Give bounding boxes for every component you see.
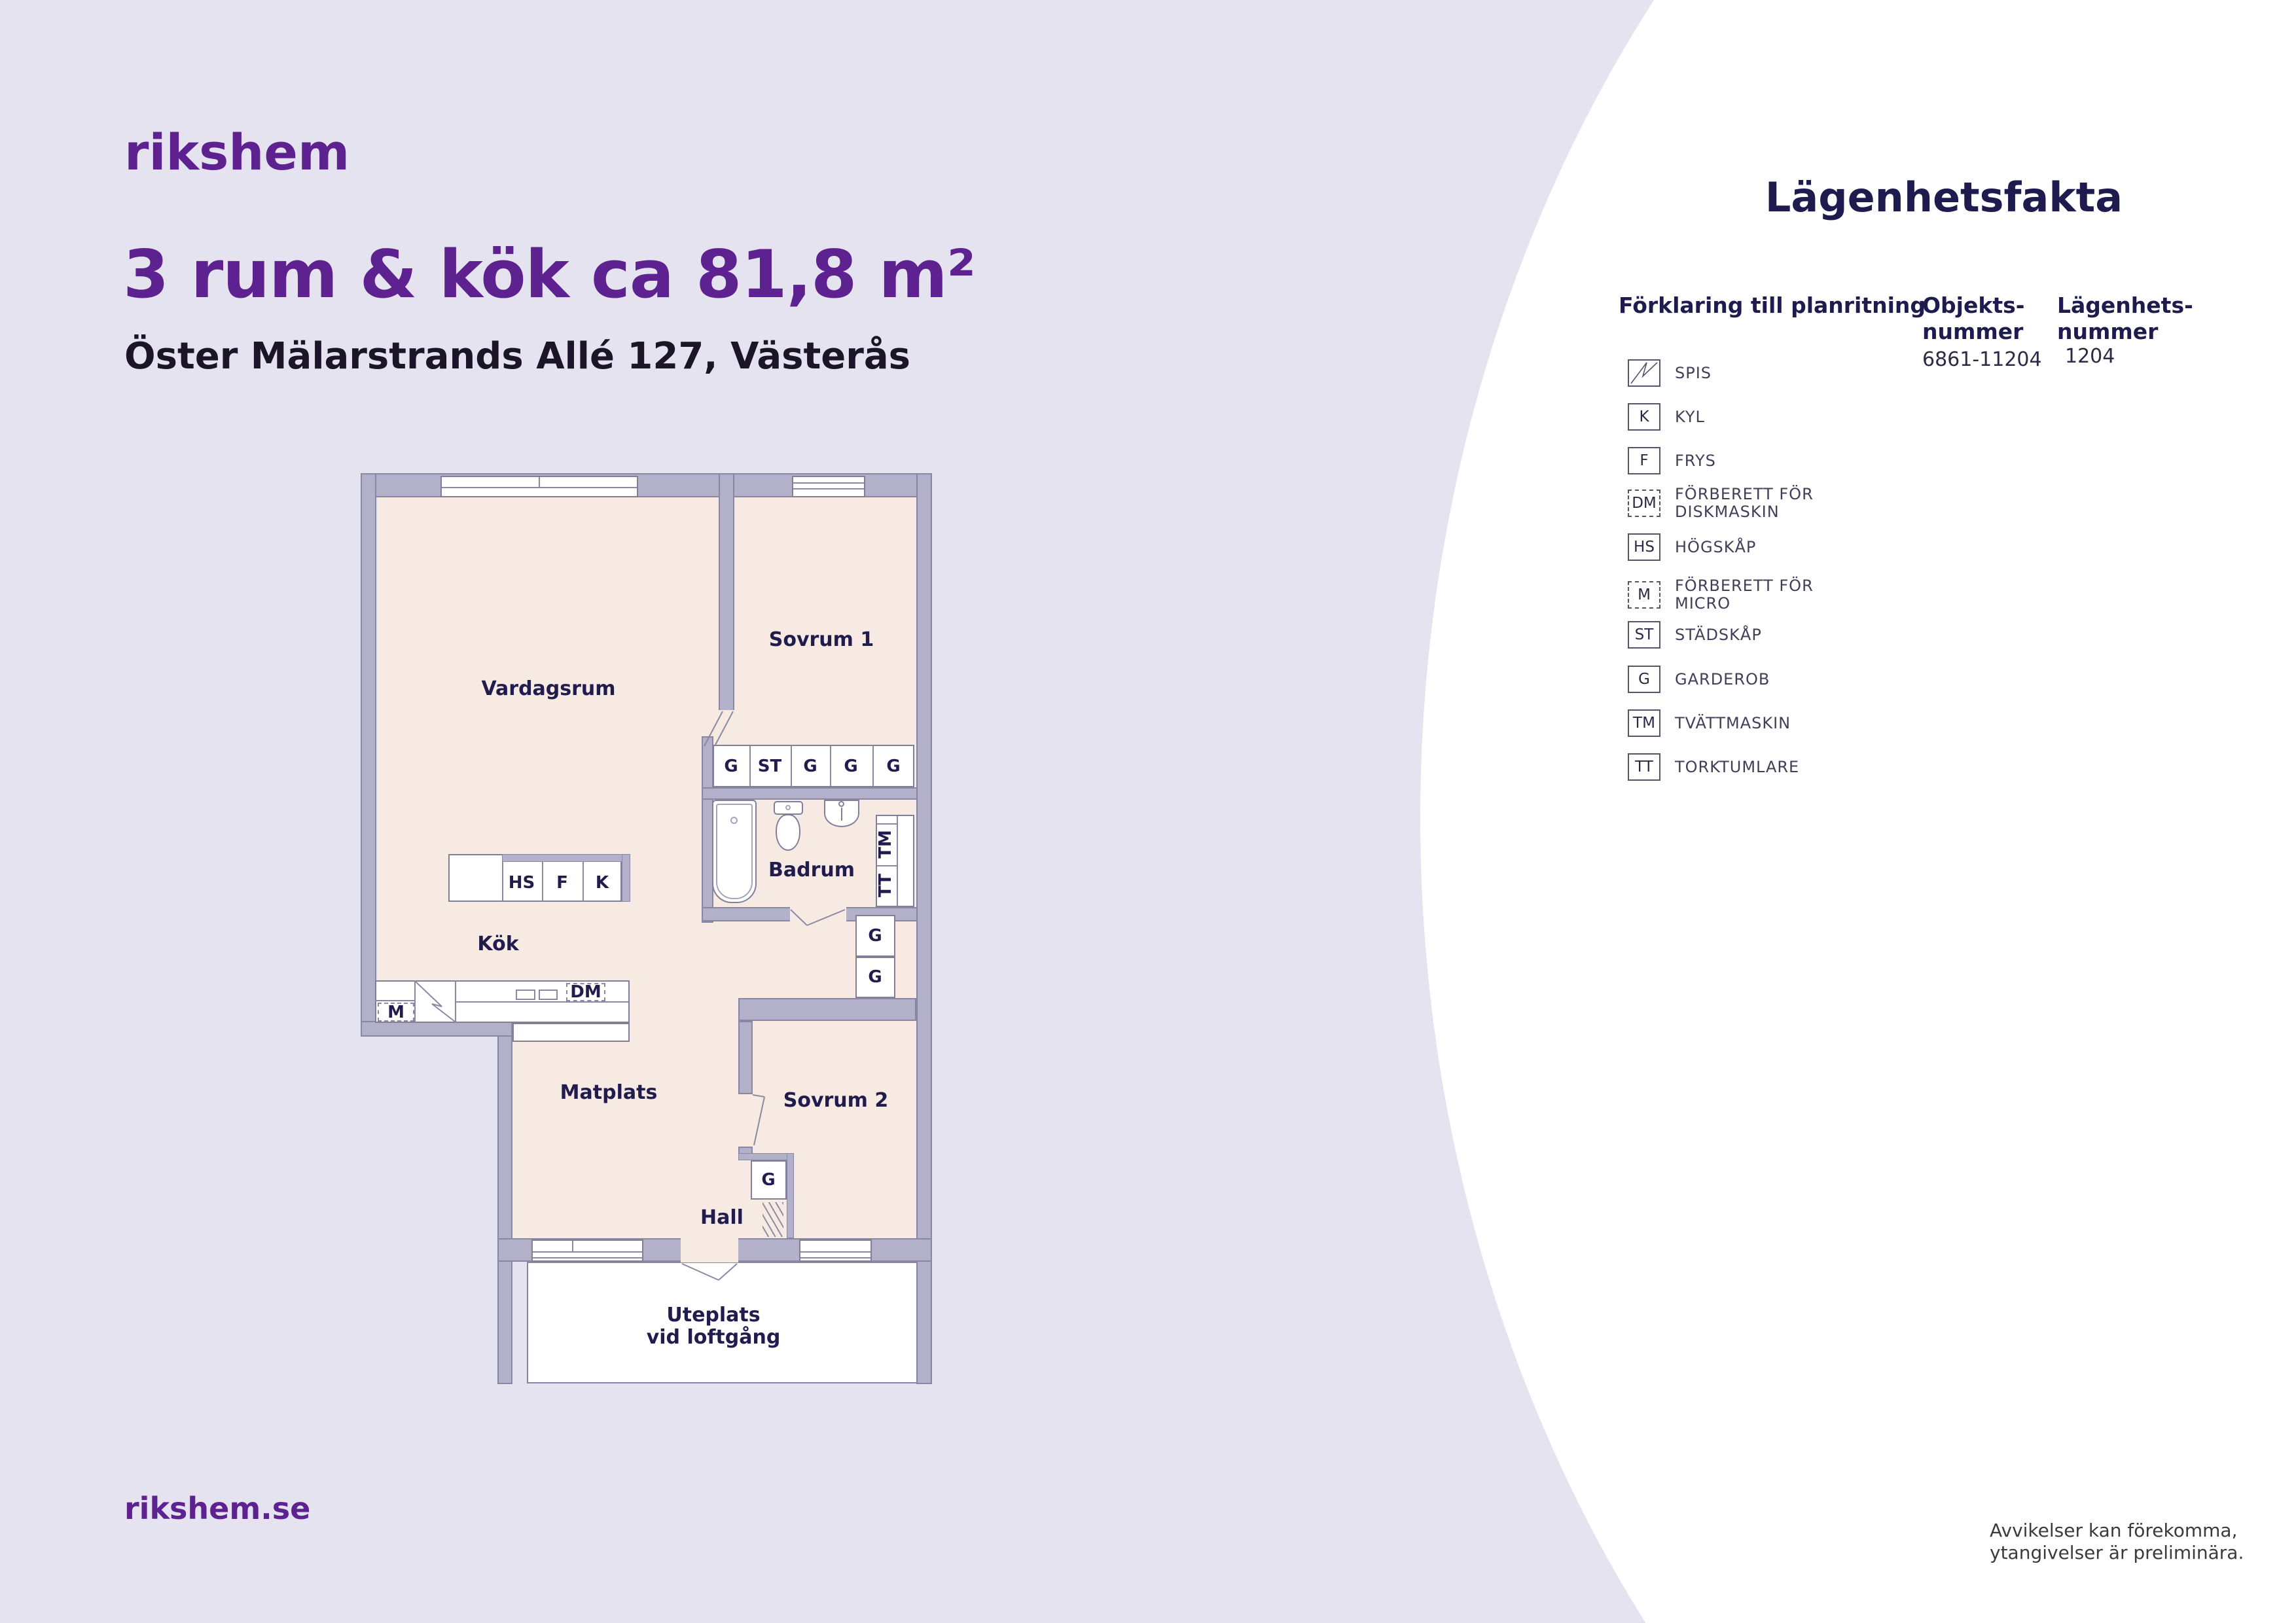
label-uteplats: Uteplats vid loftgång [647, 1304, 781, 1349]
label-kok: Kök [477, 933, 518, 955]
website-link: rikshem.se [124, 1491, 310, 1526]
label-sovrum1: Sovrum 1 [769, 629, 874, 651]
legend-row-torktumlare: TT TORKTUMLARE [1628, 753, 1799, 781]
legend-row-hogskap: HS HÖGSKÅP [1628, 533, 1756, 561]
object-number-value: 6861-11204 [1922, 348, 2042, 371]
legend-row-spis: SPIS [1628, 359, 1712, 387]
legend-row-stadskap: ST STÄDSKÅP [1628, 621, 1762, 649]
legend-row-garderob: G GARDEROB [1628, 666, 1770, 693]
apartment-number-value: 1204 [2065, 345, 2115, 368]
door-swing-lines [353, 458, 942, 1394]
label-sovrum2: Sovrum 2 [783, 1090, 889, 1112]
label-hall: Hall [700, 1207, 744, 1229]
legend-row-micro: M FÖRBERETT FÖR MICRO [1628, 577, 1814, 613]
legend-row-diskmaskin: DM FÖRBERETT FÖR DISKMASKIN [1628, 486, 1814, 521]
disclaimer-text: Avvikelser kan förekomma, ytangivelser ä… [1990, 1520, 2244, 1564]
apartment-number-header: Lägenhets- nummer [2057, 293, 2193, 345]
facts-title: Lägenhetsfakta [1702, 173, 2186, 221]
label-badrum: Badrum [768, 859, 855, 882]
legend-row-tvattmaskin: TM TVÄTTMASKIN [1628, 709, 1791, 737]
legend-row-frys: F FRYS [1628, 447, 1716, 474]
legend-row-kyl: K KYL [1628, 403, 1705, 431]
label-vardagsrum: Vardagsrum [481, 678, 615, 700]
object-number-header: Objekts- nummer [1922, 293, 2024, 345]
label-matplats: Matplats [560, 1082, 658, 1104]
stove-zigzag-icon [1628, 359, 1660, 387]
legend-title: Förklaring till planritning [1619, 293, 1926, 318]
flyer-page: rikshem 3 rum & kök ca 81,8 m² Öster Mäl… [0, 0, 2296, 1623]
floor-plan: G ST G G G HS F K DM [0, 0, 2296, 1623]
